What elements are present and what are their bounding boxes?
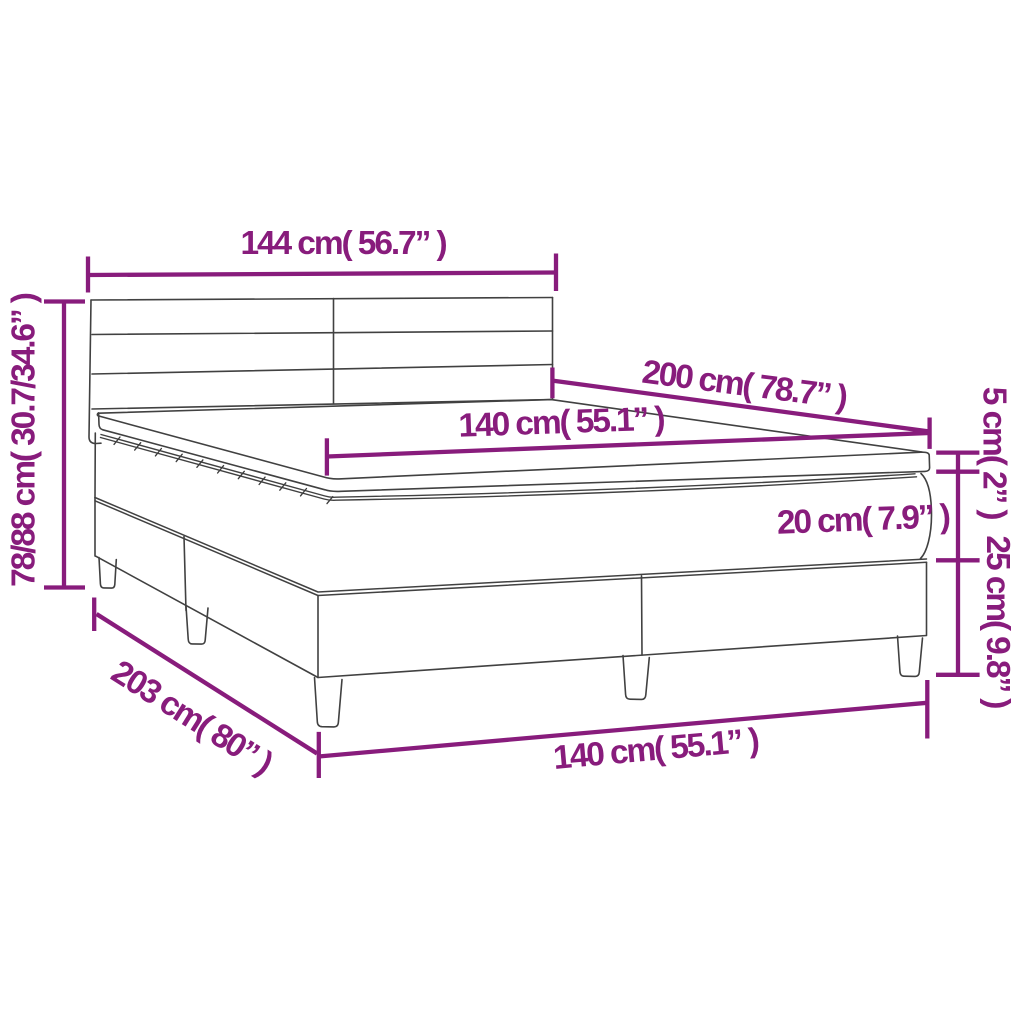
svg-text:78/88 cm( 30.7/34.6” ): 78/88 cm( 30.7/34.6” ) — [6, 293, 43, 587]
svg-text:140 cm( 55.1” ): 140 cm( 55.1” ) — [458, 401, 665, 445]
svg-text:25 cm( 9.8” ): 25 cm( 9.8” ) — [979, 535, 1016, 708]
svg-text:5 cm( 2” ): 5 cm( 2” ) — [976, 387, 1013, 520]
svg-text:144 cm( 56.7” ): 144 cm( 56.7” ) — [241, 225, 447, 262]
svg-text:20 cm( 7.9” ): 20 cm( 7.9” ) — [776, 498, 950, 542]
